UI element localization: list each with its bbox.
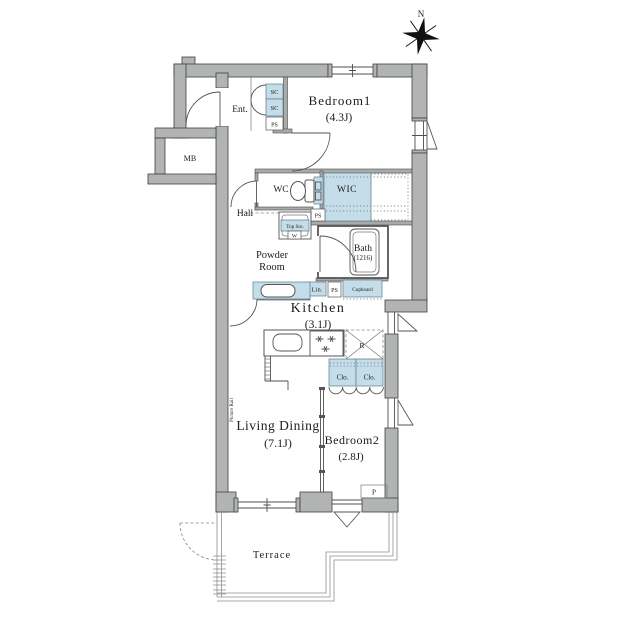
- closet-left-label: Clo.: [337, 374, 349, 382]
- hall-kitchen-door: [230, 299, 257, 326]
- bedroom2-area: (2.8J): [338, 451, 364, 463]
- hall-label: Hall: [237, 209, 254, 219]
- casement-swing-icon: [427, 121, 437, 149]
- cupboard-label: Cupboard: [352, 287, 373, 293]
- bedroom1-area: (4.3J): [326, 112, 353, 124]
- floor-plan-drawing: N Bedroom1 (4.3J) WIC WC Ent. Hall Powde…: [0, 0, 640, 640]
- bedroom1-door: [292, 133, 330, 171]
- ps-entrance-label: PS: [271, 123, 278, 129]
- vanity-basin-icon: [261, 285, 295, 298]
- wic-label: WIC: [337, 185, 357, 195]
- bedroom2-label: Bedroom2: [325, 433, 380, 447]
- bedroom2-side-window: [388, 398, 413, 428]
- terrace-boundary: [217, 512, 397, 601]
- closet-right-label: Clo.: [364, 374, 376, 382]
- kitchen-side-window: [388, 312, 417, 334]
- terrace-label: Terrace: [253, 550, 291, 561]
- pillar-label: P: [372, 489, 376, 497]
- walk-in-closet-open-area: [371, 174, 408, 220]
- closet-left: [329, 359, 356, 386]
- ps-powder-label: PS: [331, 288, 338, 294]
- top-storage-label: Top Sto.: [286, 224, 304, 230]
- terrace-fence-hatch: [213, 556, 226, 594]
- living-sliding-window: [238, 498, 296, 512]
- kitchen-area: (3.1J): [305, 319, 332, 331]
- room-labels: Bedroom1 (4.3J) WIC WC Ent. Hall Powder …: [184, 93, 380, 561]
- casement-swing-icon: [398, 314, 417, 331]
- meter-box-label: MB: [184, 154, 196, 163]
- terrace-left-fence: [217, 512, 222, 597]
- closet-right: [356, 359, 383, 386]
- linen-label: Lin.: [312, 287, 323, 294]
- entrance-label: Ent.: [232, 105, 248, 115]
- wc-label: WC: [273, 185, 288, 195]
- wc-door: [231, 181, 257, 207]
- casement-swing-icon: [398, 400, 413, 425]
- washer-label: W: [292, 234, 298, 240]
- powder-room-label-line2: Room: [259, 262, 285, 273]
- bedroom1-label: Bedroom1: [309, 93, 372, 108]
- powder-room-label-line1: Powder: [256, 250, 289, 261]
- closet-folding-doors-icon: [329, 387, 383, 394]
- bedroom1-top-window: [332, 64, 373, 77]
- compass-north-label: N: [418, 9, 425, 19]
- living-dining-label: Living Dining: [236, 418, 319, 433]
- bath-size-label: (1216): [354, 254, 373, 262]
- shoe-closet-doors: [251, 85, 266, 115]
- picture-rail-label: Picture Rail: [230, 398, 235, 422]
- sc-lower-label: SC: [271, 105, 279, 112]
- kitchen-label: Kitchen: [291, 301, 346, 316]
- kitchen-counter: [264, 330, 344, 356]
- compass-rose-icon: N: [399, 9, 443, 58]
- bathtub-icon: [318, 226, 388, 278]
- bedroom1-side-window: [412, 121, 437, 150]
- walk-in-closet-area: [324, 173, 371, 221]
- entrance-door: [186, 88, 230, 126]
- living-dining-area: (7.1J): [264, 436, 292, 450]
- bedroom2-terrace-door: [332, 500, 362, 527]
- floor-plan-page: N Bedroom1 (4.3J) WIC WC Ent. Hall Powde…: [0, 0, 640, 640]
- refrigerator-label: R: [359, 341, 364, 350]
- kitchen-half-wall: [265, 356, 288, 390]
- ps-wc-label: PS: [315, 214, 322, 220]
- sc-upper-label: SC: [271, 89, 279, 96]
- bath-label: Bath: [354, 244, 372, 254]
- toilet-icon: [291, 180, 315, 202]
- door-swing-icon: [334, 512, 360, 527]
- terrace-gate-swing: [180, 523, 217, 560]
